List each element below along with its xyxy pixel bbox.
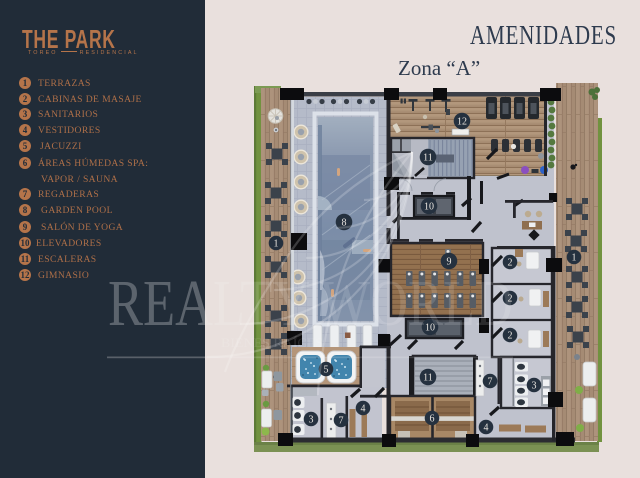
svg-text:11: 11	[423, 373, 433, 384]
svg-text:6: 6	[430, 414, 435, 425]
svg-text:5: 5	[324, 365, 329, 376]
svg-text:3: 3	[532, 381, 537, 392]
svg-text:4: 4	[484, 423, 489, 434]
svg-text:1: 1	[274, 239, 279, 250]
svg-text:7: 7	[488, 377, 493, 388]
svg-text:12: 12	[457, 117, 467, 128]
svg-text:11: 11	[423, 153, 433, 164]
svg-text:4: 4	[361, 404, 366, 415]
svg-text:1: 1	[572, 253, 577, 264]
svg-text:BIENES RAÍCES: BIENES RAÍCES	[221, 335, 323, 350]
svg-text:3: 3	[309, 415, 314, 426]
svg-text:10: 10	[424, 202, 434, 213]
svg-text:9: 9	[447, 257, 452, 268]
svg-text:7: 7	[339, 416, 344, 427]
